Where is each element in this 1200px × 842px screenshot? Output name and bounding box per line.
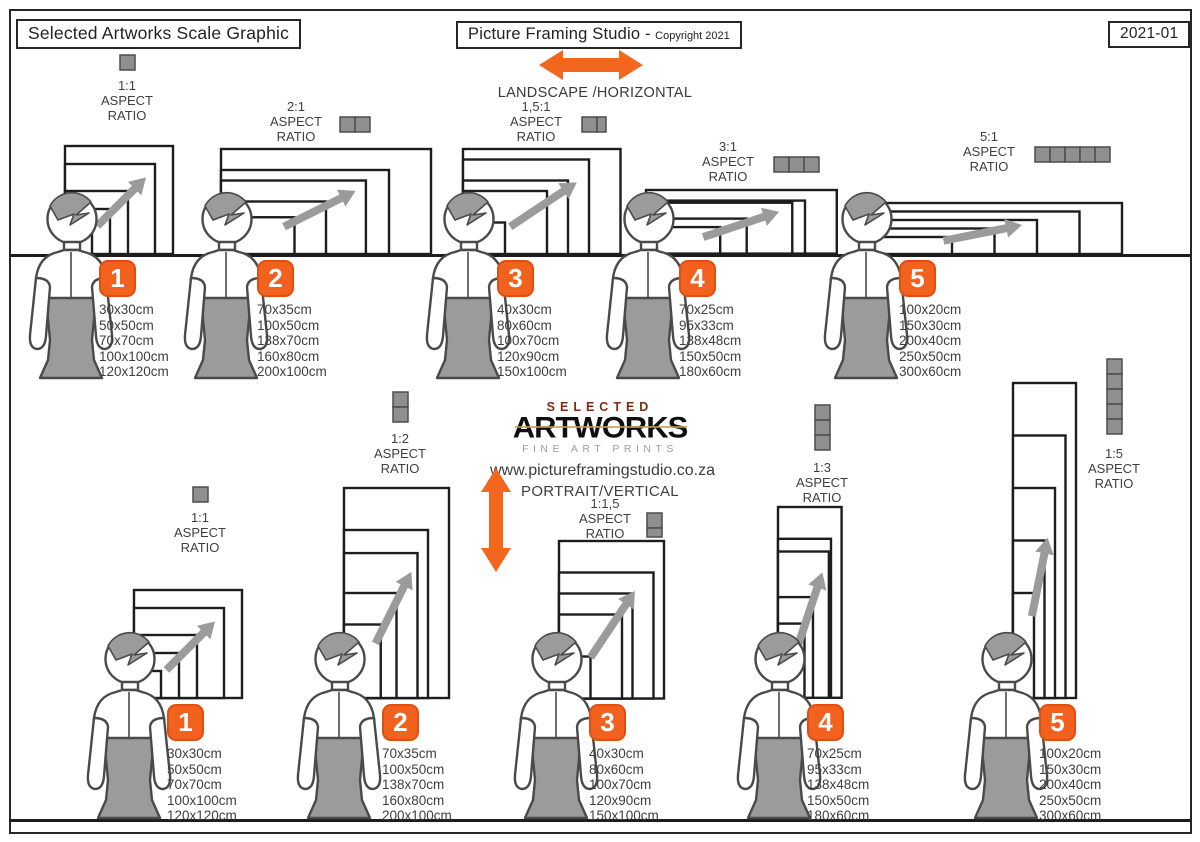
group-number-badge: 2 xyxy=(382,704,419,741)
aspect-ratio-icon xyxy=(339,116,372,133)
aspect-word: ASPECT xyxy=(1070,461,1158,476)
size-item: 50x50cm xyxy=(99,318,169,334)
ratio-value: 3:1 xyxy=(683,139,773,154)
aspect-ratio-label-portrait-1: 1:1 ASPECT RATIO xyxy=(155,486,245,555)
aspect-word: ASPECT xyxy=(491,114,581,129)
ratio-value: 1:1 xyxy=(82,78,172,93)
aspect-word: ASPECT xyxy=(777,475,867,490)
aspect-ratio-icon xyxy=(814,404,831,453)
group-number-badge: 4 xyxy=(807,704,844,741)
page-title-box: Selected Artworks Scale Graphic xyxy=(16,19,301,49)
aspect-ratio-label-landscape-4: 3:1 ASPECT RATIO xyxy=(683,139,773,184)
page-title: Selected Artworks Scale Graphic xyxy=(28,23,289,43)
size-list-landscape-1: 30x30cm 50x50cm 70x70cm 100x100cm 120x12… xyxy=(99,302,169,380)
size-list-portrait-2: 70x35cm 100x50cm 138x70cm 160x80cm 200x1… xyxy=(382,746,452,824)
aspect-ratio-label-landscape-3: 1,5:1 ASPECT RATIO xyxy=(491,99,581,144)
size-item: 200x100cm xyxy=(382,808,452,824)
aspect-ratio-label-landscape-1: 1:1 ASPECT RATIO xyxy=(82,54,172,123)
size-item: 120x120cm xyxy=(99,364,169,380)
person-figure xyxy=(295,630,383,822)
size-list-landscape-4: 70x25cm 95x33cm 138x48cm 150x50cm 180x60… xyxy=(679,302,741,380)
size-item: 70x35cm xyxy=(257,302,327,318)
size-item: 100x100cm xyxy=(99,349,169,365)
aspect-ratio-icon xyxy=(773,156,821,173)
size-list-landscape-3: 40x30cm 80x60cm 100x70cm 120x90cm 150x10… xyxy=(497,302,567,380)
size-item: 100x100cm xyxy=(167,793,237,809)
person-figure xyxy=(962,630,1050,822)
size-list-landscape-2: 70x35cm 100x50cm 138x70cm 160x80cm 200x1… xyxy=(257,302,327,380)
size-item: 200x40cm xyxy=(899,333,961,349)
size-item: 200x100cm xyxy=(257,364,327,380)
size-list-portrait-4: 70x25cm 95x33cm 138x48cm 150x50cm 180x60… xyxy=(807,746,869,824)
size-item: 100x50cm xyxy=(257,318,327,334)
size-item: 300x60cm xyxy=(1039,808,1101,824)
person-figure xyxy=(512,630,600,822)
ratio-value: 2:1 xyxy=(251,99,341,114)
ratio-word: RATIO xyxy=(777,490,867,505)
size-list-portrait-3: 40x30cm 80x60cm 100x70cm 120x90cm 150x10… xyxy=(589,746,659,824)
size-item: 138x48cm xyxy=(679,333,741,349)
size-item: 100x20cm xyxy=(1039,746,1101,762)
logo-website: www.pictureframingstudio.co.za xyxy=(490,462,710,480)
studio-title-box: Picture Framing Studio - Copyright 2021 xyxy=(456,21,742,49)
size-list-portrait-1: 30x30cm 50x50cm 70x70cm 100x100cm 120x12… xyxy=(167,746,237,824)
size-item: 180x60cm xyxy=(679,364,741,380)
size-item: 30x30cm xyxy=(99,302,169,318)
size-item: 100x50cm xyxy=(382,762,452,778)
size-item: 150x30cm xyxy=(899,318,961,334)
scale-graphic-page: Selected Artworks Scale Graphic Picture … xyxy=(0,0,1200,842)
group-number-badge: 5 xyxy=(1039,704,1076,741)
aspect-word: ASPECT xyxy=(944,144,1034,159)
person-figure xyxy=(822,190,910,382)
size-item: 95x33cm xyxy=(807,762,869,778)
size-item: 200x40cm xyxy=(1039,777,1101,793)
size-item: 150x100cm xyxy=(589,808,659,824)
size-item: 180x60cm xyxy=(807,808,869,824)
size-item: 138x48cm xyxy=(807,777,869,793)
aspect-ratio-icon xyxy=(1106,358,1123,439)
size-list-landscape-5: 100x20cm 150x30cm 200x40cm 250x50cm 300x… xyxy=(899,302,961,380)
size-item: 150x50cm xyxy=(807,793,869,809)
size-item: 250x50cm xyxy=(1039,793,1101,809)
aspect-ratio-icon xyxy=(1034,146,1112,163)
group-number-badge: 2 xyxy=(257,260,294,297)
size-item: 100x20cm xyxy=(899,302,961,318)
aspect-word: ASPECT xyxy=(683,154,773,169)
ratio-word: RATIO xyxy=(82,108,172,123)
size-item: 150x100cm xyxy=(497,364,567,380)
group-number-badge: 3 xyxy=(497,260,534,297)
size-item: 95x33cm xyxy=(679,318,741,334)
size-item: 70x70cm xyxy=(99,333,169,349)
size-item: 150x30cm xyxy=(1039,762,1101,778)
aspect-ratio-label-landscape-5: 5:1 ASPECT RATIO xyxy=(944,129,1034,174)
aspect-ratio-icon xyxy=(192,486,209,503)
group-number-badge: 3 xyxy=(589,704,626,741)
aspect-ratio-label-portrait-4: 1:3 ASPECT RATIO xyxy=(777,404,867,505)
aspect-word: ASPECT xyxy=(560,511,650,526)
size-item: 40x30cm xyxy=(497,302,567,318)
size-item: 300x60cm xyxy=(899,364,961,380)
aspect-ratio-icon xyxy=(392,391,409,424)
group-number-badge: 1 xyxy=(167,704,204,741)
size-item: 138x70cm xyxy=(382,777,452,793)
doc-number-box: 2021-01 xyxy=(1108,21,1190,48)
ratio-word: RATIO xyxy=(355,461,445,476)
ratio-value: 1,5:1 xyxy=(491,99,581,114)
size-item: 120x90cm xyxy=(589,793,659,809)
ratio-word: RATIO xyxy=(1070,476,1158,491)
size-item: 80x60cm xyxy=(589,762,659,778)
size-item: 70x35cm xyxy=(382,746,452,762)
size-item: 250x50cm xyxy=(899,349,961,365)
size-item: 120x90cm xyxy=(497,349,567,365)
size-item: 100x70cm xyxy=(497,333,567,349)
size-item: 80x60cm xyxy=(497,318,567,334)
aspect-word: ASPECT xyxy=(355,446,445,461)
aspect-word: ASPECT xyxy=(251,114,341,129)
group-number-badge: 4 xyxy=(679,260,716,297)
ratio-value: 1:5 xyxy=(1070,446,1158,461)
size-item: 138x70cm xyxy=(257,333,327,349)
aspect-ratio-label-landscape-2: 2:1 ASPECT RATIO xyxy=(251,99,341,144)
size-item: 70x70cm xyxy=(167,777,237,793)
studio-title: Picture Framing Studio - xyxy=(468,25,651,43)
size-item: 150x50cm xyxy=(679,349,741,365)
ratio-value: 1:2 xyxy=(355,431,445,446)
logo-artworks: ARTWORKS xyxy=(490,411,710,445)
aspect-ratio-icon xyxy=(119,54,136,71)
copyright-text: Copyright 2021 xyxy=(655,30,730,42)
size-list-portrait-5: 100x20cm 150x30cm 200x40cm 250x50cm 300x… xyxy=(1039,746,1101,824)
size-item: 160x80cm xyxy=(257,349,327,365)
logo-strike-line xyxy=(515,426,687,428)
ratio-value: 1:1 xyxy=(155,510,245,525)
size-item: 70x25cm xyxy=(679,302,741,318)
aspect-ratio-icon xyxy=(646,512,663,539)
doc-number: 2021-01 xyxy=(1120,25,1178,42)
size-item: 70x25cm xyxy=(807,746,869,762)
size-item: 160x80cm xyxy=(382,793,452,809)
aspect-word: ASPECT xyxy=(82,93,172,108)
ratio-word: RATIO xyxy=(251,129,341,144)
ratio-word: RATIO xyxy=(683,169,773,184)
ratio-value: 1:1,5 xyxy=(560,496,650,511)
vertical-double-arrow-icon xyxy=(478,468,514,572)
logo: SELECTED ARTWORKS FINE ART PRINTS www.pi… xyxy=(490,400,710,500)
size-item: 100x70cm xyxy=(589,777,659,793)
ratio-word: RATIO xyxy=(944,159,1034,174)
aspect-ratio-icon xyxy=(581,116,608,133)
ratio-value: 1:3 xyxy=(777,460,867,475)
aspect-ratio-label-portrait-2: 1:2 ASPECT RATIO xyxy=(355,391,445,476)
aspect-word: ASPECT xyxy=(155,525,245,540)
group-number-badge: 1 xyxy=(99,260,136,297)
aspect-ratio-label-portrait-3: 1:1,5 ASPECT RATIO xyxy=(560,496,650,541)
person-figure xyxy=(85,630,173,822)
size-item: 40x30cm xyxy=(589,746,659,762)
ratio-word: RATIO xyxy=(155,540,245,555)
aspect-ratio-label-portrait-5: 1:5 ASPECT RATIO xyxy=(1070,358,1158,491)
size-item: 50x50cm xyxy=(167,762,237,778)
ratio-value: 5:1 xyxy=(944,129,1034,144)
ratio-word: RATIO xyxy=(491,129,581,144)
size-item: 120x120cm xyxy=(167,808,237,824)
size-item: 30x30cm xyxy=(167,746,237,762)
horizontal-double-arrow-icon xyxy=(539,47,643,83)
group-number-badge: 5 xyxy=(899,260,936,297)
